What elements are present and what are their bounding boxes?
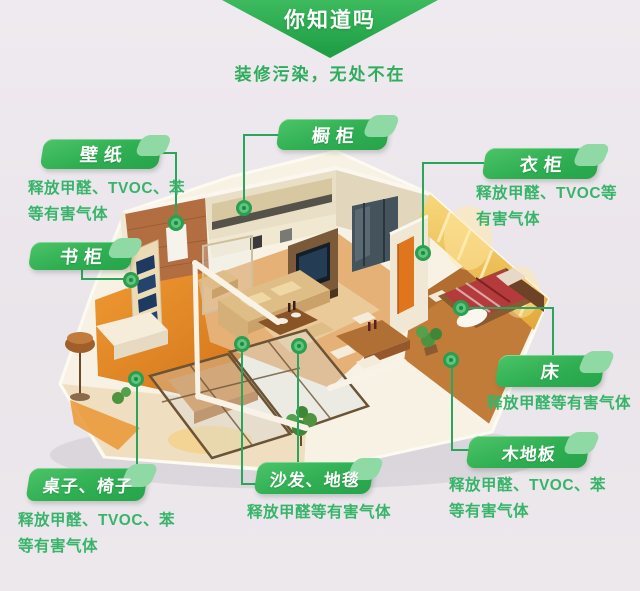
badge-label: 壁纸 (73, 141, 129, 167)
hazard-note-line: 释放甲醛等有害气体 (247, 500, 391, 526)
hazard-note-table-chairs: 释放甲醛、TVOC、苯 等有害气体 (18, 508, 175, 560)
badge-label: 衣柜 (513, 151, 569, 177)
badge-label: 桌子、椅子 (40, 472, 133, 497)
label-badge-wallpaper: 壁纸 (40, 139, 163, 169)
hazard-note-line: 等有害气体 (18, 534, 175, 560)
hazard-note-line: 等有害气体 (28, 202, 185, 228)
marker-dots (123, 200, 469, 387)
marker-dot-table-chairs (128, 371, 144, 387)
hazard-note-line: 有害气体 (476, 207, 617, 233)
connector-wardrobe (423, 163, 484, 253)
label-badge-wood-floor: 木地板 (465, 436, 590, 468)
subtitle: 装修污染，无处不在 (0, 60, 640, 85)
marker-dot-carpet (291, 338, 307, 354)
hazard-note-wardrobe: 释放甲醛、TVOC等 有害气体 (476, 181, 617, 233)
hazard-note-wood-floor: 释放甲醛、TVOC、苯 等有害气体 (449, 473, 606, 525)
hazard-note-line: 等有害气体 (449, 499, 606, 525)
marker-dot-wood-floor (443, 352, 459, 368)
marker-dot-sofa (234, 336, 250, 352)
label-badge-table-chairs: 桌子、椅子 (25, 468, 148, 501)
infographic: 你知道吗 装修污染，无处不在 壁纸 橱柜 衣柜 书柜 床 木地板 桌子、椅子 沙… (0, 0, 640, 591)
badge-label: 书柜 (53, 243, 109, 269)
marker-dot-bed (453, 300, 469, 316)
hazard-note-line: 释放甲醛、TVOC等 (476, 181, 617, 207)
badge-label: 橱柜 (305, 122, 361, 148)
label-badge-bed: 床 (494, 355, 605, 387)
hazard-note-line: 释放甲醛等有害气体 (487, 391, 631, 417)
connector-sofa (242, 344, 256, 484)
marker-dot-bookcase (123, 272, 139, 288)
hazard-note-line: 释放甲醛、TVOC、苯 (18, 508, 175, 534)
label-badge-sofa-carpet: 沙发、地毯 (253, 462, 374, 494)
badge-label: 床 (534, 358, 566, 384)
connector-bed (461, 308, 553, 357)
hazard-note-line: 释放甲醛、TVOC、苯 (28, 176, 185, 202)
hazard-note-wallpaper: 释放甲醛、TVOC、苯 等有害气体 (28, 176, 185, 228)
hazard-note-line: 释放甲醛、TVOC、苯 (449, 473, 606, 499)
marker-dot-wardrobe (415, 245, 431, 261)
badge-label: 沙发、地毯 (267, 466, 360, 491)
label-badge-cupboard: 橱柜 (276, 119, 391, 150)
connector-cupboard (244, 135, 278, 208)
label-badge-wardrobe: 衣柜 (482, 148, 601, 179)
connector-wood-floor (452, 360, 469, 450)
hazard-note-bed: 释放甲醛等有害气体 (487, 391, 631, 417)
marker-dot-cupboard (236, 200, 252, 216)
banner-title: 你知道吗 (284, 4, 376, 34)
hazard-note-sofa-carpet: 释放甲醛等有害气体 (247, 500, 391, 526)
badge-label: 木地板 (499, 440, 556, 465)
label-badge-bookcase: 书柜 (28, 242, 134, 270)
